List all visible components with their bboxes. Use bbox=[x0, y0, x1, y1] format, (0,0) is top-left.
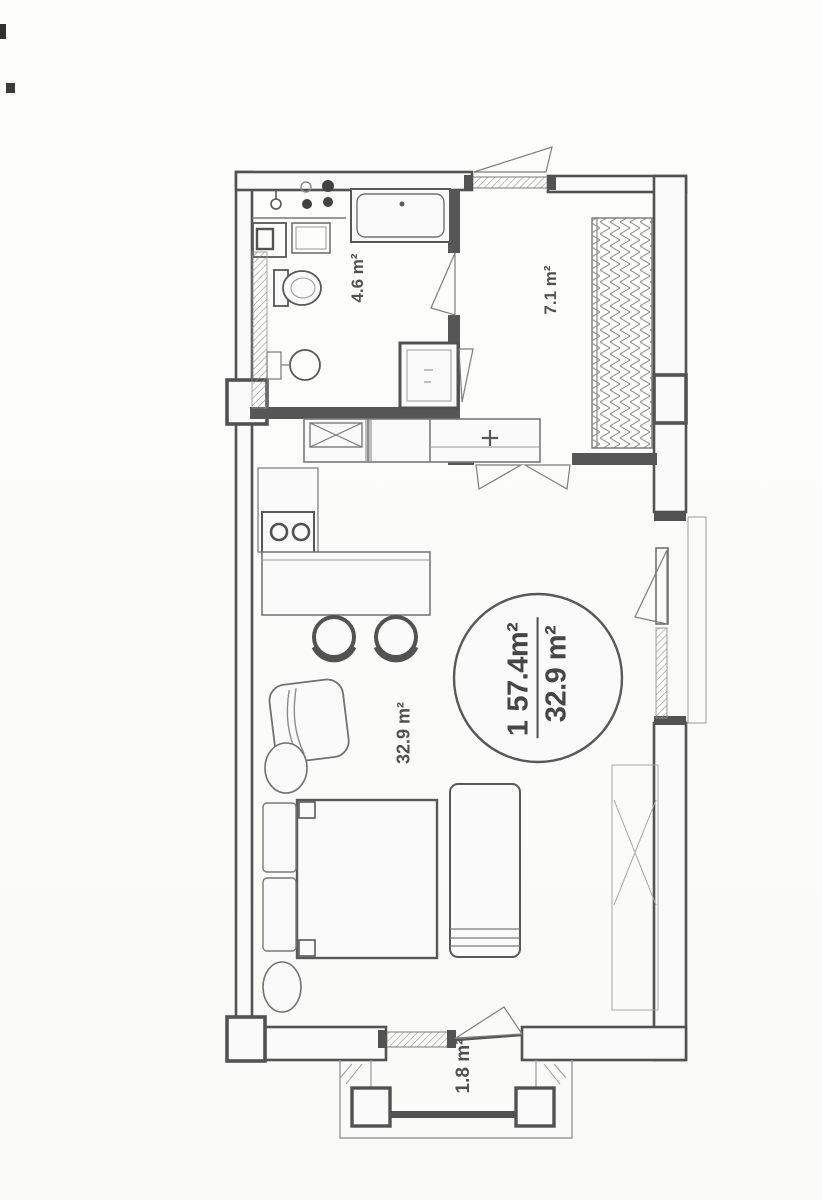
area-stamp-total-line: 1 57.4m² bbox=[504, 618, 539, 739]
faucet-icon bbox=[271, 190, 281, 209]
pillar-bottom-left bbox=[227, 1017, 265, 1061]
kitchen-island bbox=[262, 552, 430, 615]
bathroom-door-swing bbox=[431, 253, 455, 315]
scanned-floor-plan-page: 4.6 m² 7.1 m² 32.9 m² 1.8 m² 1 57.4m² 32… bbox=[0, 0, 822, 1200]
bed bbox=[297, 800, 437, 958]
pillow bbox=[263, 803, 296, 872]
bath-cabinet bbox=[292, 223, 330, 253]
balcony-pillar bbox=[352, 1088, 390, 1126]
bar-stool bbox=[376, 617, 416, 660]
bathroom-area-label: 4.6 m² bbox=[348, 253, 368, 302]
exterior-ledge bbox=[688, 517, 706, 723]
bed-bench bbox=[450, 784, 520, 957]
top-wall-left bbox=[236, 172, 472, 190]
balcony-door-swing bbox=[456, 1007, 522, 1038]
storage-closet bbox=[400, 343, 473, 408]
stove bbox=[262, 512, 314, 554]
wardrobe bbox=[592, 218, 652, 448]
entry-window-sill bbox=[472, 177, 548, 188]
pillar-right-mid bbox=[654, 375, 686, 423]
bottom-window-sill bbox=[386, 1032, 448, 1047]
balcony-pillar bbox=[516, 1088, 554, 1126]
floor-plan-scan: 4.6 m² 7.1 m² 32.9 m² 1.8 m² 1 57.4m² 32… bbox=[0, 0, 822, 1200]
entry-door-swing bbox=[474, 147, 552, 172]
bottom-opening bbox=[378, 1007, 522, 1048]
scan-artifacts bbox=[0, 24, 15, 93]
unit-number: 1 bbox=[504, 721, 534, 737]
right-wall-upper bbox=[654, 176, 686, 512]
hall-area-label: 7.1 m² bbox=[541, 265, 561, 314]
entry-opening bbox=[464, 147, 556, 190]
pillow bbox=[263, 878, 296, 951]
left-wall bbox=[236, 172, 252, 1060]
living-area-value: 32.9 m² bbox=[539, 618, 572, 722]
bottom-wall-right bbox=[522, 1027, 686, 1060]
toilet bbox=[274, 270, 321, 306]
hall-double-door bbox=[476, 465, 570, 489]
wash-basin bbox=[267, 350, 320, 380]
balcony-door-right bbox=[635, 512, 706, 725]
wall-shelf bbox=[612, 765, 658, 1010]
living-area-label: 32.9 m² bbox=[394, 702, 415, 764]
bathtub bbox=[351, 189, 450, 242]
hall-living-wall-right bbox=[572, 453, 657, 465]
total-area-value: 57.4m² bbox=[504, 623, 534, 712]
balcony-area-label: 1.8 m² bbox=[453, 1039, 475, 1094]
balcony-front-edge bbox=[390, 1111, 516, 1118]
area-stamp: 1 57.4m² 32.9 m² bbox=[504, 618, 573, 739]
floor-plan-drawing bbox=[0, 0, 822, 1200]
nightstand bbox=[265, 743, 307, 793]
nightstand bbox=[263, 962, 301, 1012]
kitchen-counter-row bbox=[304, 419, 540, 462]
closet-door-swing bbox=[459, 349, 473, 402]
bar-stool bbox=[314, 617, 354, 660]
right-wall-lower bbox=[654, 723, 686, 1060]
shower-hatch bbox=[252, 252, 267, 408]
balcony-door-swing bbox=[635, 550, 667, 624]
balcony-door-sill bbox=[656, 628, 667, 718]
